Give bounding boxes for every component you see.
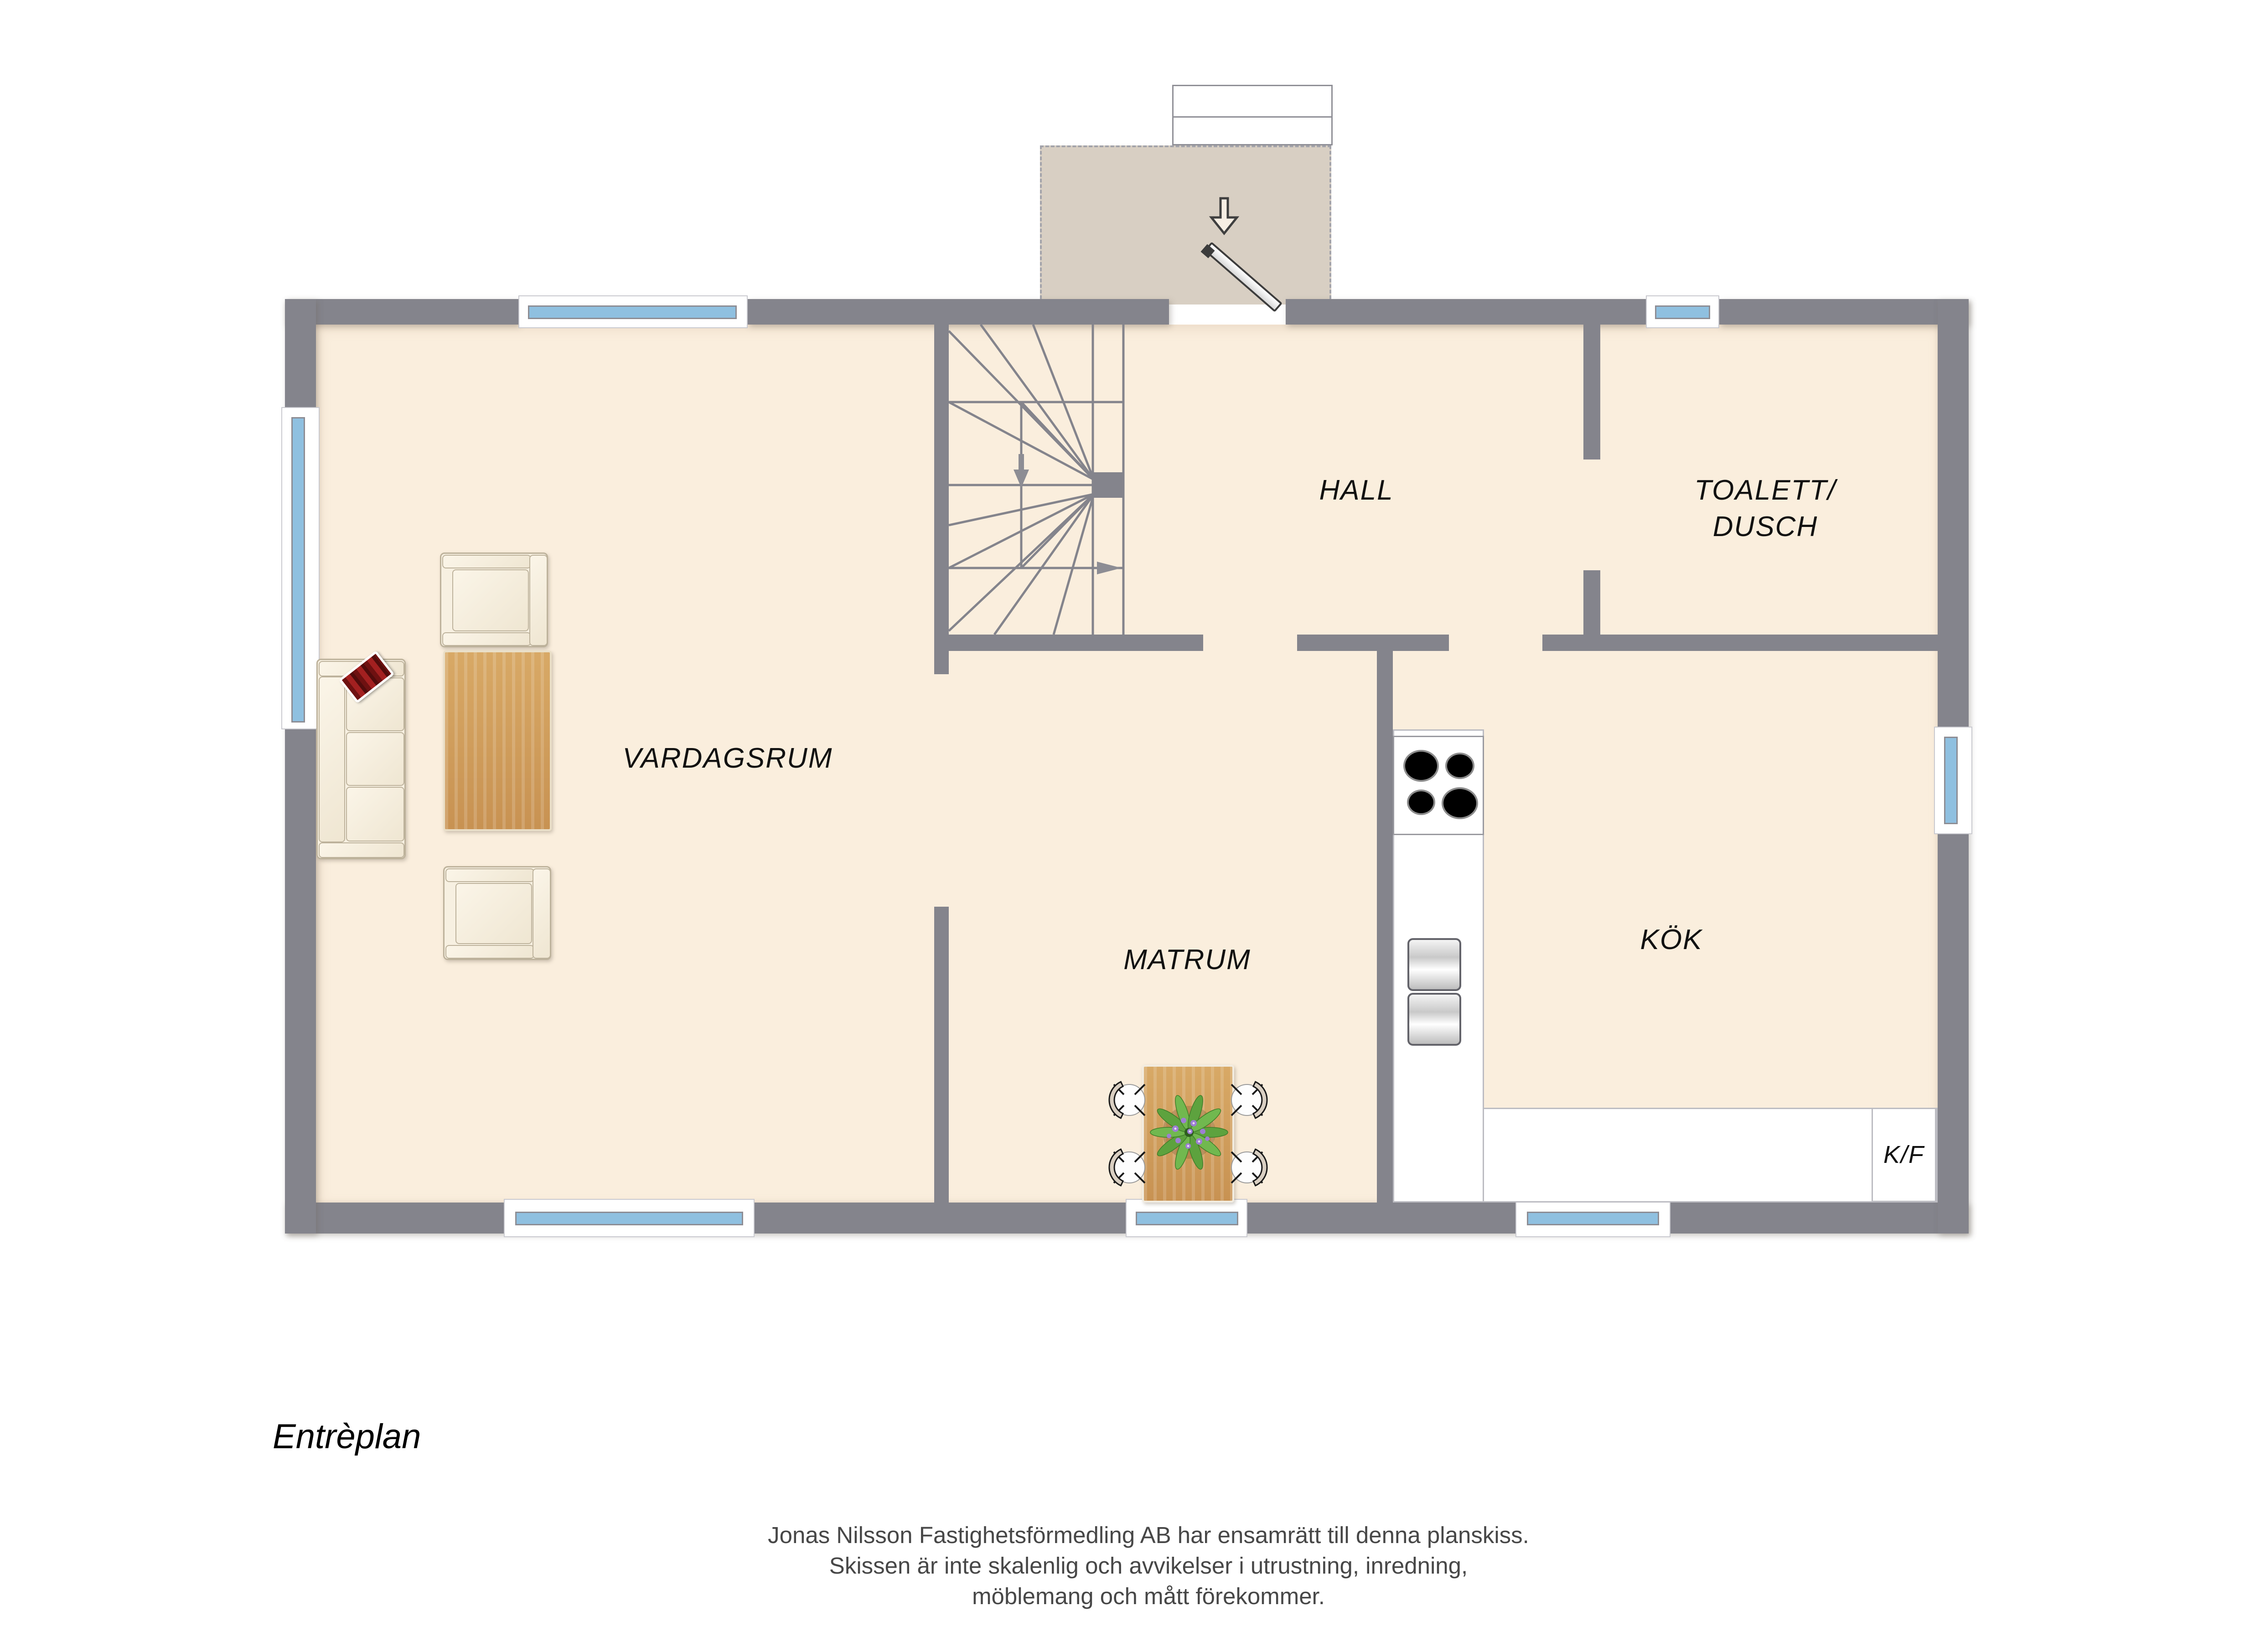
room-label-hall: HALL bbox=[1265, 474, 1448, 506]
room-label-matrum: MATRUM bbox=[1096, 944, 1278, 976]
wall-stairs-bottom bbox=[949, 635, 1203, 651]
kitchen-sink-basin bbox=[1407, 993, 1461, 1046]
stove bbox=[1393, 736, 1484, 835]
level-label: Entrèplan bbox=[273, 1417, 421, 1456]
floorplan-page: VARDAGSRUM HALL TOALETT/ DUSCH MATRUM KÖ… bbox=[0, 0, 2260, 1652]
room-label-toalett-dusch: TOALETT/ DUSCH bbox=[1619, 472, 1911, 545]
sofa-cushion bbox=[346, 732, 404, 786]
wall-hall-matrum bbox=[1297, 635, 1449, 651]
wall-stairs-left bbox=[934, 325, 949, 674]
room-label-vardagsrum: VARDAGSRUM bbox=[522, 742, 933, 774]
armchair-backrest bbox=[529, 555, 548, 646]
armchair bbox=[443, 866, 551, 960]
window-vardagsrum-top-glass bbox=[528, 305, 737, 319]
wall-matrum-kitchen bbox=[1377, 651, 1393, 1203]
potted-plant bbox=[1148, 1091, 1230, 1173]
armchair-armrest bbox=[442, 632, 531, 646]
stove-burner bbox=[1403, 750, 1439, 782]
stove-burner bbox=[1445, 753, 1474, 779]
armchair-armrest bbox=[445, 945, 534, 959]
sofa-cushion bbox=[346, 787, 404, 841]
window-kitchen-right-glass bbox=[1944, 737, 1958, 824]
wall-top-left-segment bbox=[285, 299, 518, 325]
armchair-seat bbox=[452, 569, 529, 631]
stairs-exit-arrow bbox=[1097, 562, 1122, 574]
armchair-backrest bbox=[533, 868, 551, 959]
room-label-toalett-line2: DUSCH bbox=[1619, 509, 1911, 545]
wall-top-mid-segment bbox=[748, 299, 1169, 325]
wall-vardagsrum-matrum bbox=[934, 907, 949, 1203]
entry-direction-arrow bbox=[1199, 196, 1249, 246]
stove-burner bbox=[1407, 790, 1435, 815]
wall-toilet-left-upper bbox=[1583, 325, 1600, 459]
disclaimer-text: Jonas Nilsson Fastighetsförmedling AB ha… bbox=[590, 1520, 1707, 1611]
window-vardagsrum-bottom-glass bbox=[515, 1212, 743, 1225]
window-matrum-bottom-glass bbox=[1136, 1212, 1238, 1225]
disclaimer-line: Jonas Nilsson Fastighetsförmedling AB ha… bbox=[590, 1520, 1707, 1550]
entry-steps bbox=[1172, 85, 1333, 145]
entry-porch bbox=[1040, 145, 1331, 305]
stair-newel-post bbox=[1094, 472, 1123, 498]
wall-top-far-right-segment bbox=[1719, 299, 1969, 325]
wall-hall-toilet-bottom bbox=[1542, 635, 1938, 651]
armchair-seat bbox=[455, 883, 532, 944]
dining-chair bbox=[1223, 1144, 1271, 1191]
room-label-kok: KÖK bbox=[1580, 924, 1763, 956]
entry-step-divider bbox=[1174, 116, 1331, 118]
disclaimer-line: möblemang och mått förekommer. bbox=[590, 1581, 1707, 1611]
kitchen-counter-bottom bbox=[1483, 1108, 1938, 1203]
fridge-freezer-label: K/F bbox=[1872, 1141, 1936, 1169]
staircase bbox=[949, 325, 1125, 635]
armchair-armrest bbox=[445, 868, 534, 882]
kitchen-sink-basin bbox=[1407, 938, 1461, 991]
disclaimer-line: Skissen är inte skalenlig och avvikelser… bbox=[590, 1550, 1707, 1581]
window-vardagsrum-left-glass bbox=[291, 417, 305, 723]
sofa-backrest bbox=[319, 676, 345, 842]
room-label-toalett-line1: TOALETT/ bbox=[1619, 472, 1911, 509]
wall-top-right-segment bbox=[1286, 299, 1646, 325]
coffee-table bbox=[443, 650, 552, 831]
dining-chair bbox=[1106, 1144, 1153, 1191]
dining-chair bbox=[1106, 1076, 1153, 1124]
armchair bbox=[440, 552, 548, 647]
dining-chair bbox=[1223, 1076, 1271, 1124]
window-kitchen-bottom-glass bbox=[1527, 1212, 1659, 1225]
window-toilet-top-glass bbox=[1655, 305, 1710, 319]
stairs-down-arrow bbox=[1014, 454, 1029, 488]
wall-toilet-left-lower bbox=[1583, 570, 1600, 635]
armchair-armrest bbox=[442, 555, 531, 568]
sofa-armrest bbox=[319, 842, 404, 858]
stove-burner bbox=[1442, 787, 1478, 819]
